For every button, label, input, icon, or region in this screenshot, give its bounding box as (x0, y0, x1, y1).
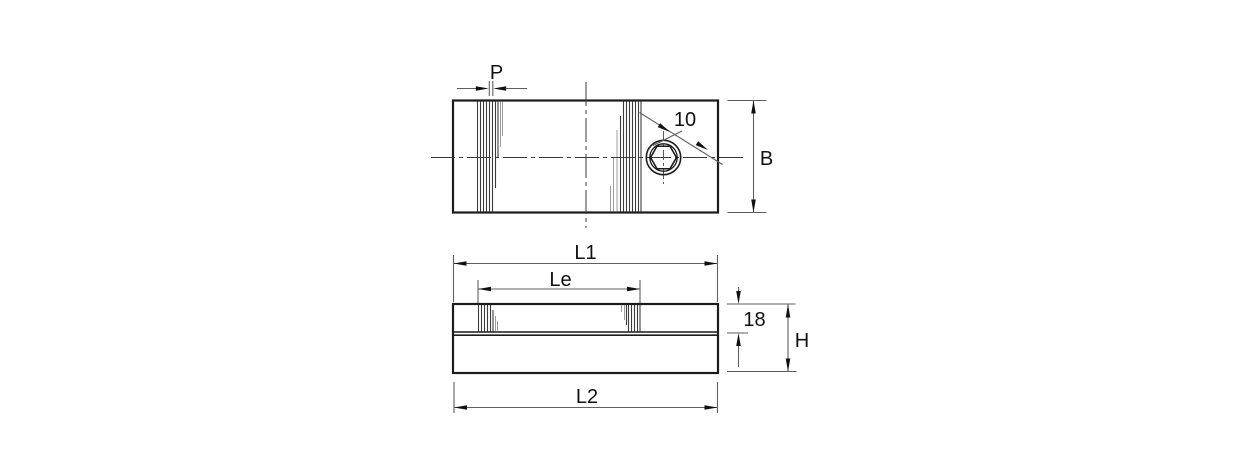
hole-diameter-label: 10 (674, 109, 696, 131)
total-height-label: H (795, 330, 809, 352)
technical-drawing: P 10 B (0, 0, 1240, 450)
top-view-graduations-left (478, 102, 503, 212)
dimension-pitch: P (457, 62, 527, 96)
length-l1-label: L1 (574, 242, 596, 264)
scale-height-label: 18 (743, 309, 765, 331)
front-view-graduations-right (622, 305, 641, 332)
dimension-scale-height-18: 18 (727, 287, 796, 367)
front-view: L1 Le 18 H (453, 242, 809, 413)
dimension-length-le: Le (478, 269, 640, 303)
top-view: P 10 B (431, 62, 773, 228)
length-le-label: Le (549, 269, 571, 291)
dimension-length-l2: L2 (454, 382, 718, 413)
top-view-graduations-right (611, 102, 642, 212)
length-l2-label: L2 (576, 386, 598, 408)
dimension-width-b: B (728, 101, 774, 213)
pitch-label: P (490, 62, 503, 84)
width-b-label: B (760, 148, 773, 170)
dimension-length-l1: L1 (454, 242, 718, 302)
front-view-graduations-left (479, 305, 498, 332)
